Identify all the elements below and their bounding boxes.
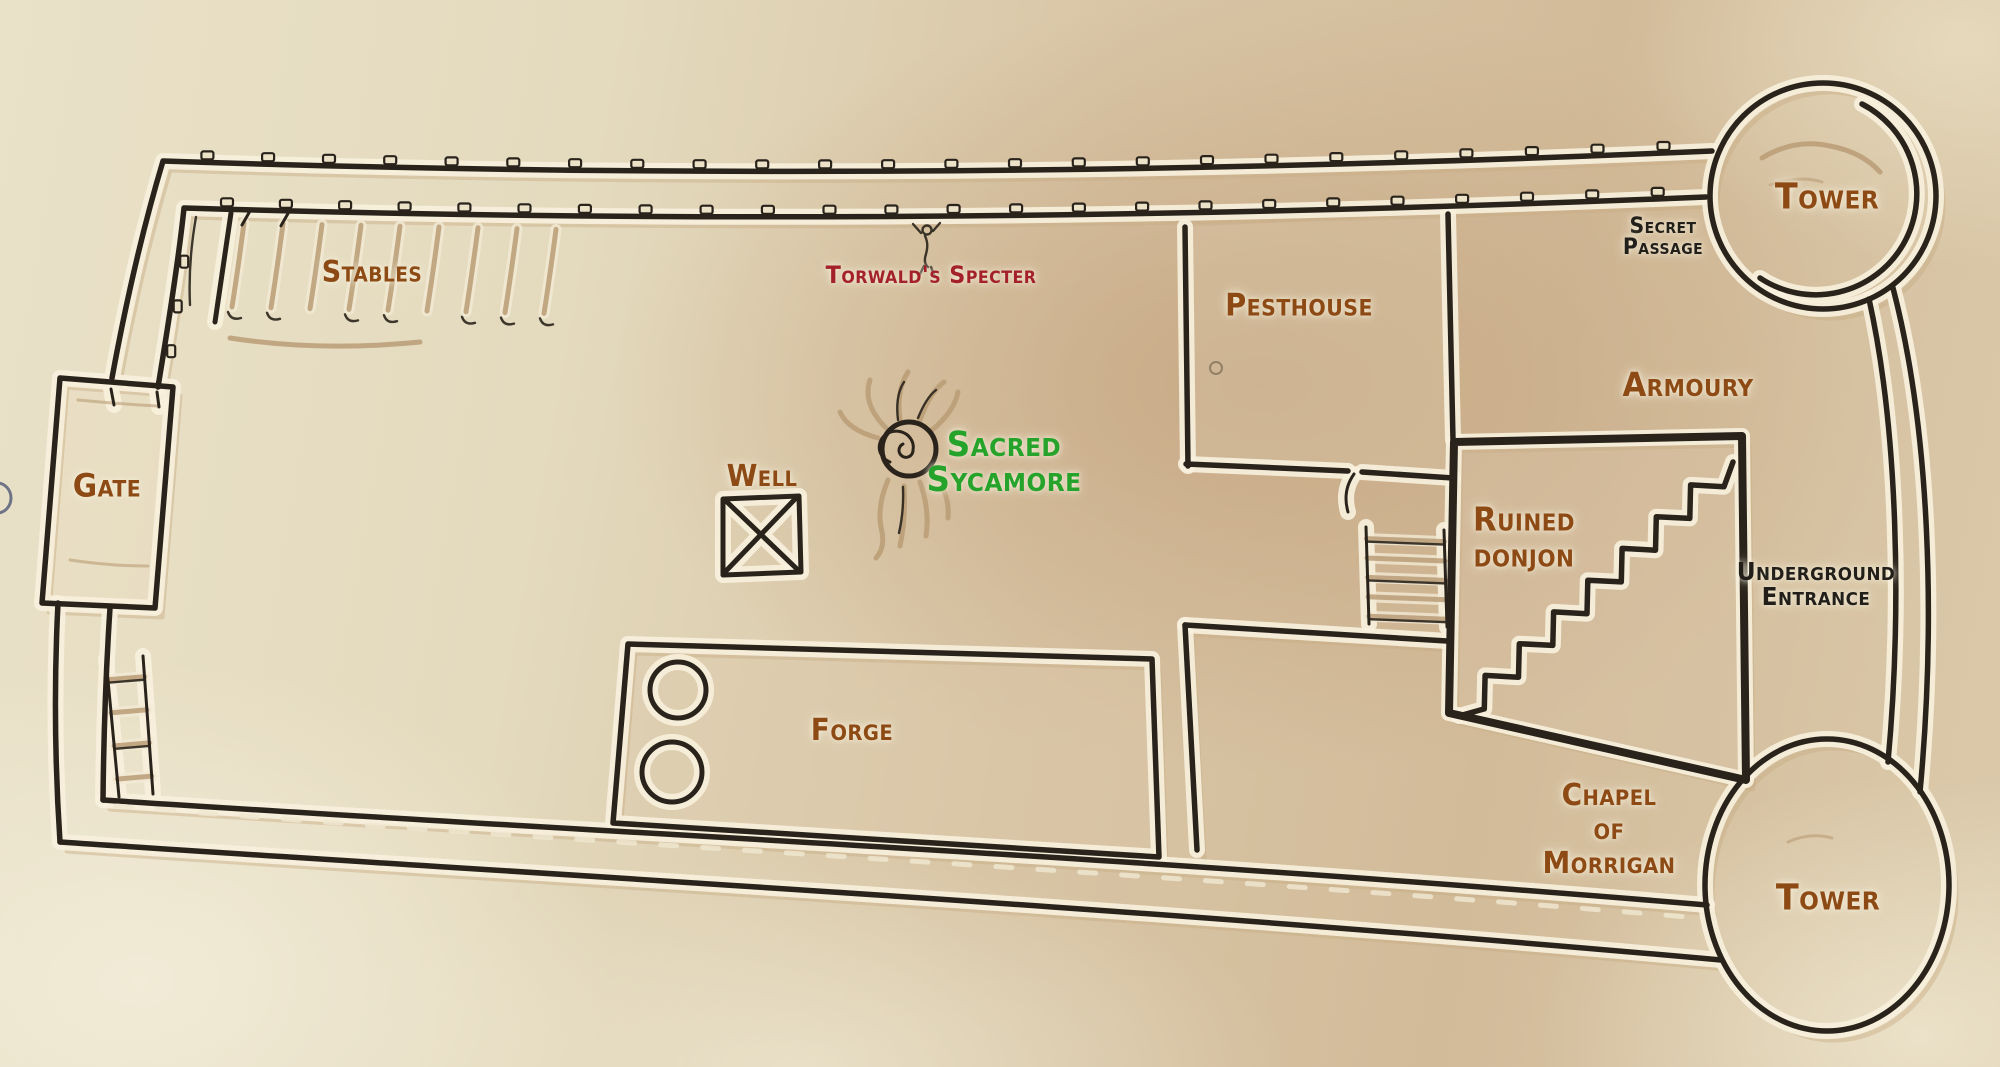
label-torwalds-specter: Torwald's Specter [826,263,1037,289]
label-chapel-of-morrigan: Chapel of Morrigan [1543,779,1676,881]
label-gate: Gate [73,469,141,504]
castle-map-canvas: Stables Gate Well Forge Pesthouse Armour… [0,0,2000,1067]
label-secret-passage: Secret Passage [1623,217,1703,259]
label-ruined-donjon: Ruined donjon [1473,502,1575,575]
label-well: Well [727,461,798,493]
well-marker-x [725,498,798,572]
label-armoury: Armoury [1622,367,1753,403]
label-underground-entrance: Underground Entrance [1737,559,1896,609]
label-forge: Forge [811,715,893,747]
pesthouse-wall-left [1185,227,1188,466]
label-tower-northeast: Tower [1775,179,1879,218]
label-stables: Stables [322,256,422,287]
map-pin-blob [0,483,11,513]
castle-map-drawing [0,0,2000,1067]
label-sacred-sycamore: Sacred Sycamore [927,428,1082,498]
label-pesthouse: Pesthouse [1225,289,1373,322]
label-tower-southeast: Tower [1776,880,1880,919]
